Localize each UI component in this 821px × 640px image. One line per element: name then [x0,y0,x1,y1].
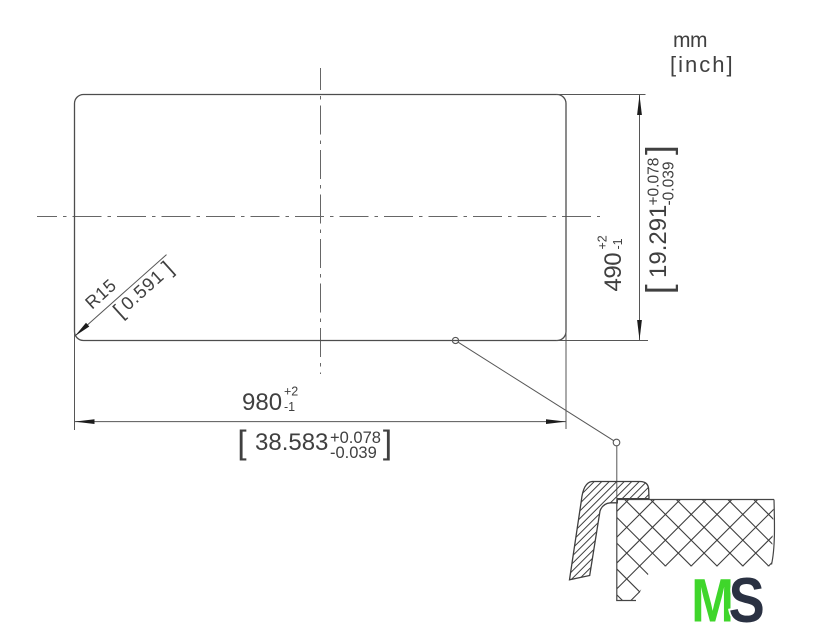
svg-text:980: 980 [242,389,282,416]
svg-text:]: ] [383,424,392,461]
svg-text:+2: +2 [284,385,298,399]
svg-text:]: ] [640,145,679,155]
svg-text:mm: mm [673,29,707,52]
svg-text:19.291: 19.291 [645,205,672,278]
svg-text:490: 490 [600,253,627,292]
svg-text:+2: +2 [596,235,610,249]
svg-text:-1: -1 [284,400,295,414]
svg-text:-0.039: -0.039 [330,444,377,462]
svg-text:-1: -1 [611,238,625,249]
svg-text:38.583: 38.583 [255,429,328,456]
svg-text:-0.039: -0.039 [661,162,678,206]
svg-text:[: [ [640,284,679,294]
svg-text:M: M [691,566,734,634]
svg-text:[: [ [237,424,246,461]
svg-text:S: S [729,566,765,636]
svg-text:[inch]: [inch] [670,52,735,77]
svg-text:0.591: 0.591 [117,265,168,314]
